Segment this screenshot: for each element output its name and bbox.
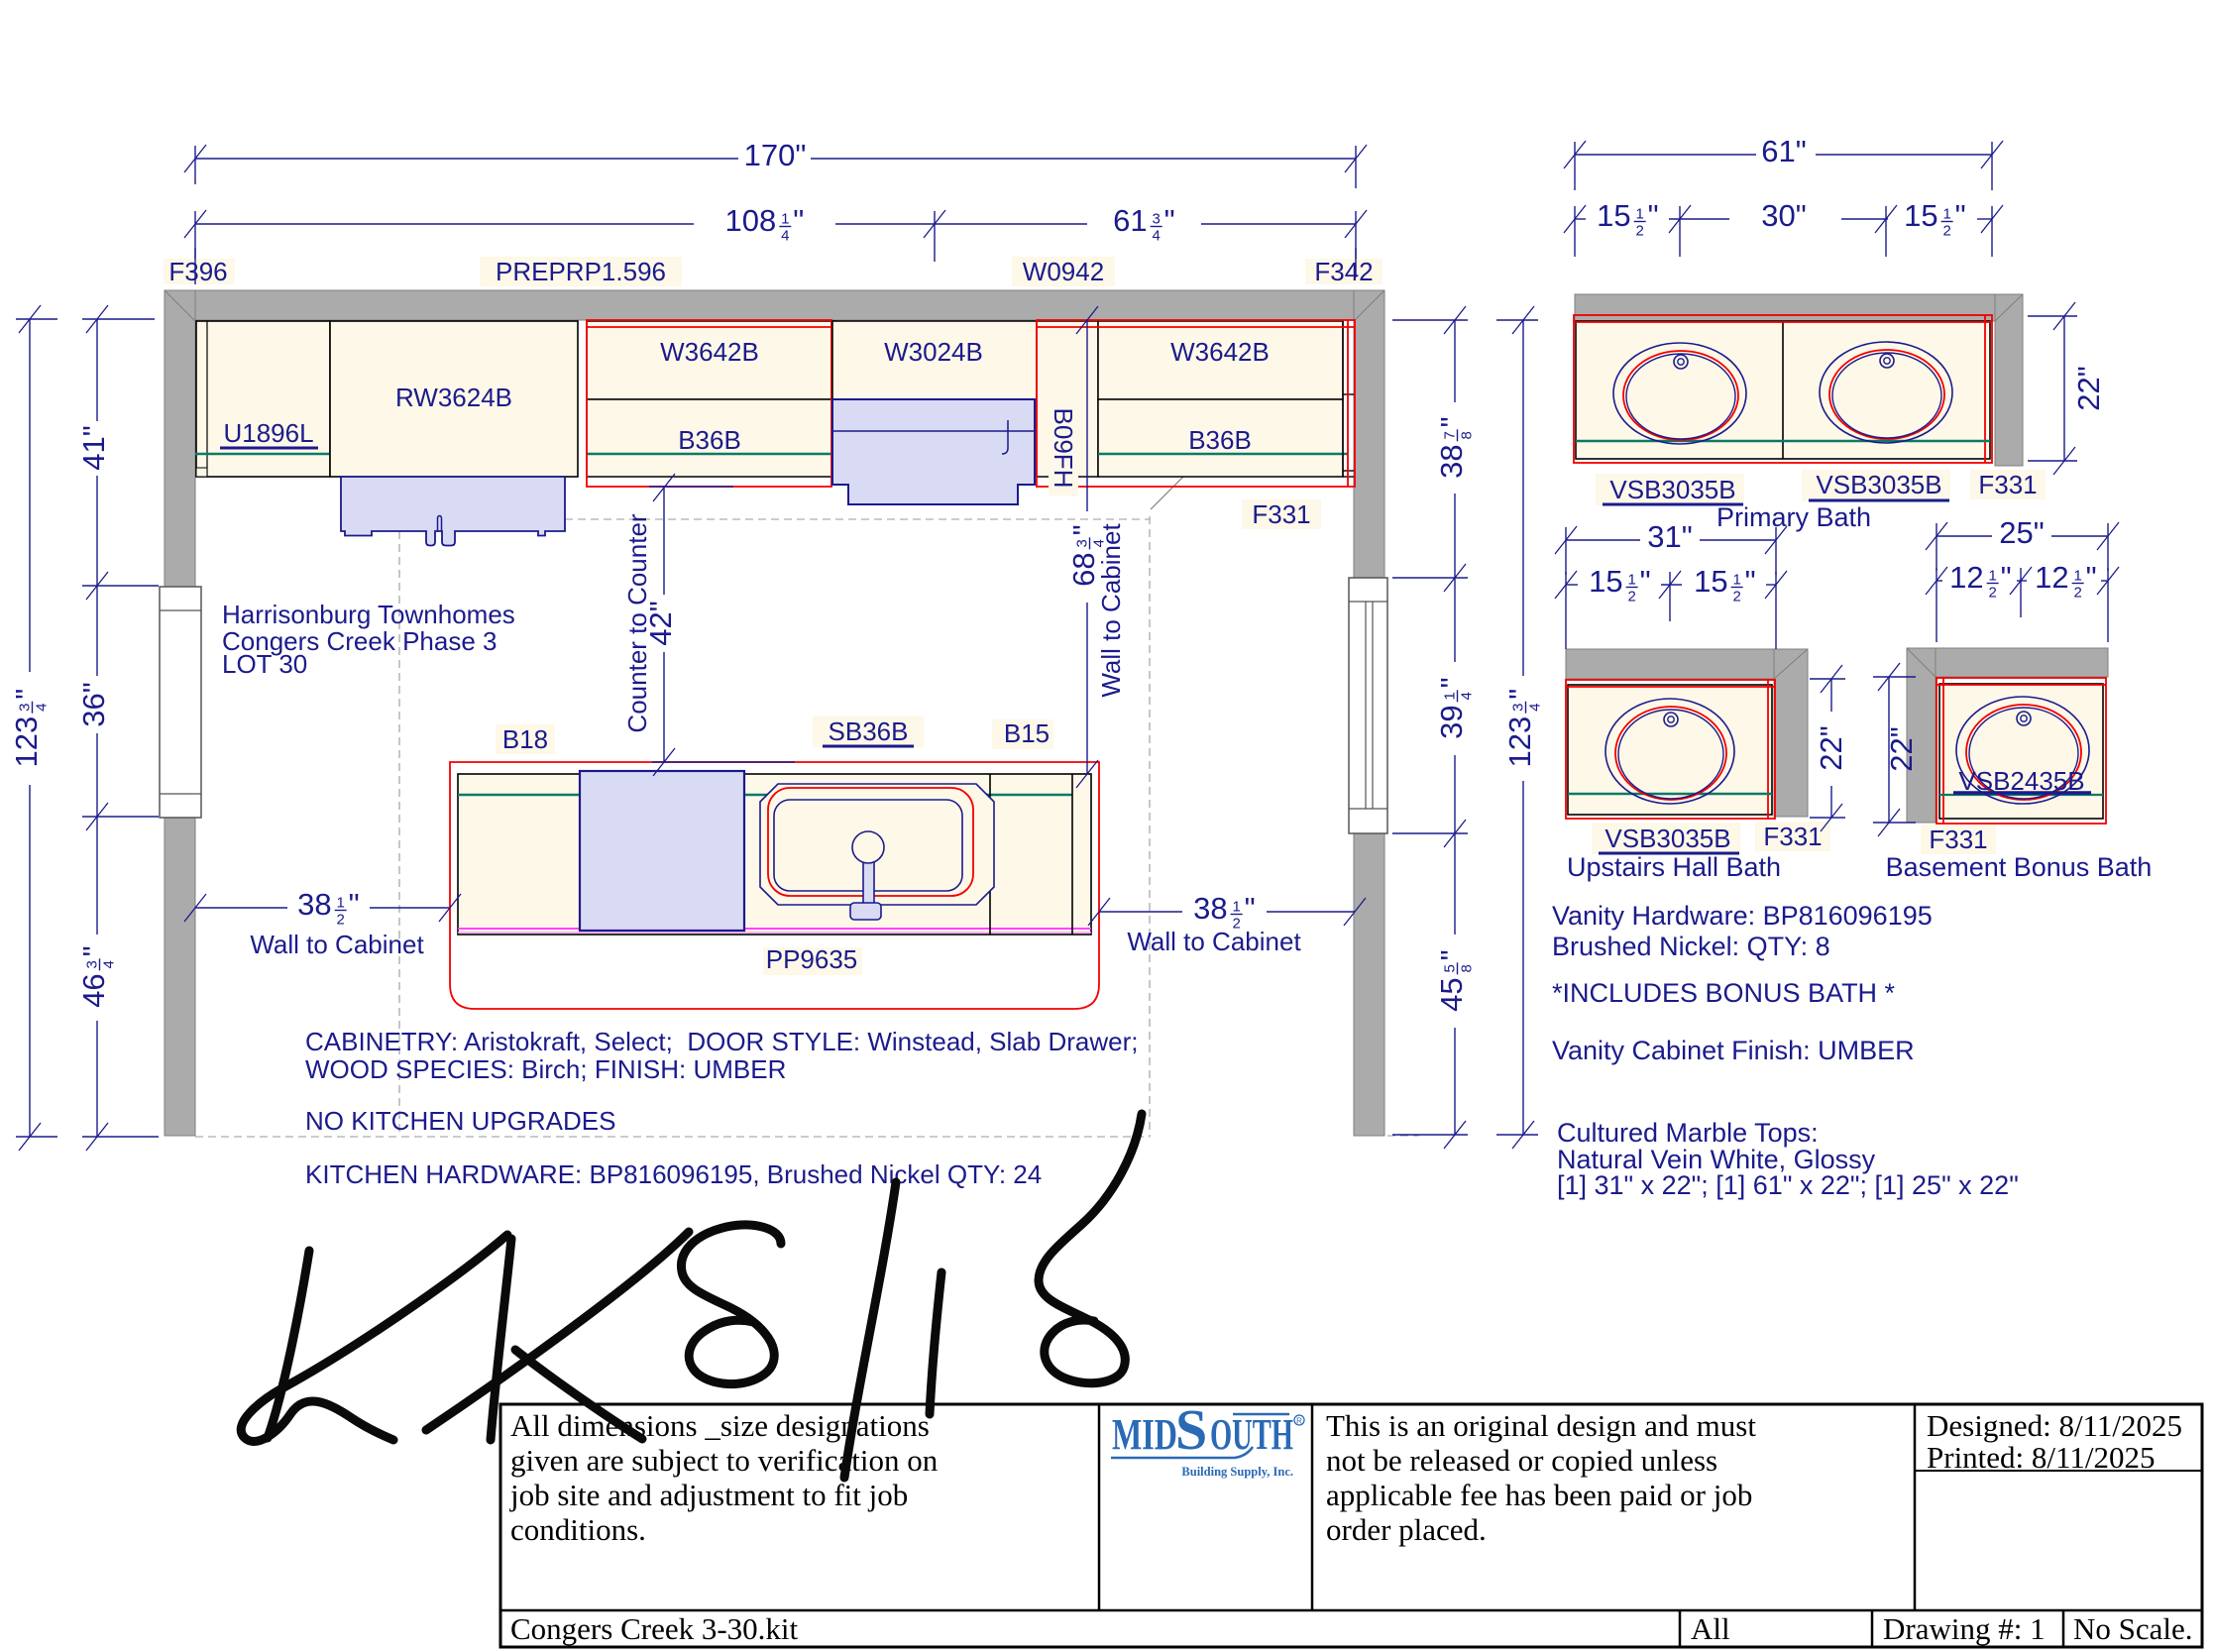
svg-text:38: 38 xyxy=(1434,444,1469,478)
svg-text:3: 3 xyxy=(1074,539,1091,547)
svg-text:LOT 30: LOT 30 xyxy=(222,649,307,679)
svg-text:U1896L: U1896L xyxy=(223,418,313,448)
svg-text:All: All xyxy=(1691,1611,1730,1646)
svg-text:No Scale.: No Scale. xyxy=(2073,1611,2193,1646)
svg-text:": " xyxy=(349,887,360,922)
svg-text:12: 12 xyxy=(1949,560,1983,595)
svg-text:Designed: 8/11/2025: Designed: 8/11/2025 xyxy=(1927,1408,2182,1443)
svg-text:2: 2 xyxy=(2073,585,2081,602)
svg-text:conditions.: conditions. xyxy=(510,1512,646,1547)
svg-text:1: 1 xyxy=(1988,568,1996,585)
svg-text:RW3624B: RW3624B xyxy=(395,383,512,412)
svg-text:": " xyxy=(1434,416,1469,427)
svg-text:This is an original design and: This is an original design and must xyxy=(1326,1408,1756,1443)
svg-text:Upstairs Hall Bath: Upstairs Hall Bath xyxy=(1567,852,1781,882)
svg-text:MID: MID xyxy=(1112,1410,1177,1459)
svg-text:Building Supply, Inc.: Building Supply, Inc. xyxy=(1181,1465,1293,1479)
svg-text:Basement Bonus Bath: Basement Bonus Bath xyxy=(1886,852,2153,882)
svg-text:45: 45 xyxy=(1434,977,1469,1011)
svg-text:": " xyxy=(1434,949,1469,960)
svg-text:36": 36" xyxy=(76,682,111,727)
svg-text:Vanity Hardware: BP816096195: Vanity Hardware: BP816096195 xyxy=(1552,901,1933,931)
svg-text:": " xyxy=(1245,891,1256,926)
svg-text:46: 46 xyxy=(76,973,111,1007)
svg-text:VSB3035B: VSB3035B xyxy=(1816,470,1941,499)
svg-text:": " xyxy=(1434,677,1469,688)
svg-text:SB36B: SB36B xyxy=(829,716,909,746)
svg-text:": " xyxy=(1502,689,1537,700)
svg-text:not be released or copied unle: not be released or copied unless xyxy=(1326,1443,1717,1478)
svg-text:": " xyxy=(1648,198,1659,233)
svg-text:CABINETRY: Aristokraft, Select: CABINETRY: Aristokraft, Select; DOOR STY… xyxy=(305,1027,1138,1056)
svg-text:3: 3 xyxy=(17,704,34,712)
svg-text:3: 3 xyxy=(1510,704,1527,712)
svg-text:1: 1 xyxy=(336,895,344,912)
svg-text:Wall to Cabinet: Wall to Cabinet xyxy=(1096,523,1126,698)
svg-text:170": 170" xyxy=(744,138,807,172)
svg-text:VSB3035B: VSB3035B xyxy=(1604,824,1730,853)
svg-text:W0942: W0942 xyxy=(1023,257,1104,286)
svg-text:": " xyxy=(1164,203,1175,238)
svg-text:7: 7 xyxy=(1442,431,1459,439)
svg-text:22": 22" xyxy=(1814,725,1848,771)
svg-text:39: 39 xyxy=(1434,705,1469,738)
svg-text:41": 41" xyxy=(76,425,111,471)
svg-text:2: 2 xyxy=(1988,585,1996,602)
svg-text:Harrisonburg Townhomes: Harrisonburg Townhomes xyxy=(222,600,515,629)
svg-text:": " xyxy=(1955,198,1966,233)
svg-text:38: 38 xyxy=(1193,891,1227,926)
svg-text:8: 8 xyxy=(1459,964,1476,972)
svg-text:": " xyxy=(9,689,44,700)
svg-text:W3642B: W3642B xyxy=(1170,337,1270,367)
svg-text:Congers Creek 3-30.kit: Congers Creek 3-30.kit xyxy=(510,1611,799,1646)
svg-text:Drawing #: 1: Drawing #: 1 xyxy=(1883,1611,2046,1646)
svg-text:": " xyxy=(1745,564,1756,599)
svg-text:2: 2 xyxy=(1635,223,1643,240)
svg-text:108: 108 xyxy=(724,203,776,238)
svg-text:F331: F331 xyxy=(1252,499,1310,529)
svg-text:15: 15 xyxy=(1589,564,1622,599)
svg-text:Cultured Marble Tops:: Cultured Marble Tops: xyxy=(1557,1118,1819,1148)
svg-text:B36B: B36B xyxy=(1188,425,1252,455)
svg-text:B09FH: B09FH xyxy=(1049,408,1078,489)
svg-text:4: 4 xyxy=(781,228,789,245)
svg-text:F331: F331 xyxy=(1929,825,1987,854)
svg-text:": " xyxy=(793,203,804,238)
svg-text:B18: B18 xyxy=(502,724,548,754)
svg-text:VSB3035B: VSB3035B xyxy=(1609,475,1735,504)
svg-text:1: 1 xyxy=(1442,692,1459,700)
svg-text:31": 31" xyxy=(1647,519,1693,554)
svg-text:2: 2 xyxy=(336,912,344,929)
svg-text:B15: B15 xyxy=(1004,718,1050,748)
svg-text:NO KITCHEN UPGRADES: NO KITCHEN UPGRADES xyxy=(305,1106,616,1136)
svg-text:PP9635: PP9635 xyxy=(766,944,858,974)
svg-text:61": 61" xyxy=(1761,134,1807,168)
svg-text:OUTH: OUTH xyxy=(1210,1410,1293,1459)
svg-text:15: 15 xyxy=(1597,198,1630,233)
svg-text:Wall to Cabinet: Wall to Cabinet xyxy=(1127,927,1301,956)
svg-text:Primary Bath: Primary Bath xyxy=(1716,502,1871,532)
svg-text:1: 1 xyxy=(1232,899,1240,916)
svg-text:[1] 31" x 22"; [1] 61" x 22";: [1] 31" x 22"; [1] 61" x 22"; [1] 25" x … xyxy=(1557,1170,2019,1200)
svg-text:": " xyxy=(1640,564,1651,599)
svg-text:4: 4 xyxy=(101,960,118,968)
svg-text:Printed: 8/11/2025: Printed: 8/11/2025 xyxy=(1927,1440,2156,1475)
svg-text:2: 2 xyxy=(1732,589,1740,606)
svg-text:25": 25" xyxy=(1999,515,2045,550)
svg-text:4: 4 xyxy=(1459,692,1476,700)
svg-text:8: 8 xyxy=(1459,431,1476,439)
svg-text:": " xyxy=(2001,560,2012,595)
svg-text:15: 15 xyxy=(1694,564,1727,599)
svg-text:15: 15 xyxy=(1904,198,1937,233)
svg-text:123: 123 xyxy=(1502,716,1537,768)
svg-text:4: 4 xyxy=(1152,228,1160,245)
svg-text:order placed.: order placed. xyxy=(1326,1512,1487,1547)
svg-text:2: 2 xyxy=(1627,589,1635,606)
svg-text:1: 1 xyxy=(1635,206,1643,223)
svg-text:Vanity Cabinet Finish: UMBER: Vanity Cabinet Finish: UMBER xyxy=(1552,1036,1915,1065)
svg-text:R: R xyxy=(1296,1417,1302,1426)
svg-text:F342: F342 xyxy=(1314,257,1373,286)
svg-text:": " xyxy=(76,945,111,956)
svg-text:All dimensions _size designati: All dimensions _size designations xyxy=(510,1408,930,1443)
svg-text:5: 5 xyxy=(1442,964,1459,972)
svg-text:3: 3 xyxy=(1152,211,1160,228)
svg-text:KITCHEN HARDWARE: BP816096195,: KITCHEN HARDWARE: BP816096195, Brushed N… xyxy=(305,1159,1042,1189)
svg-text:2: 2 xyxy=(1942,223,1950,240)
svg-text:3: 3 xyxy=(84,960,101,968)
svg-text:1: 1 xyxy=(2073,568,2081,585)
svg-text:Counter to Counter: Counter to Counter xyxy=(622,513,652,732)
svg-text:applicable fee has been paid o: applicable fee has been paid or job xyxy=(1326,1478,1752,1512)
svg-text:F331: F331 xyxy=(1763,822,1822,851)
svg-text:1: 1 xyxy=(781,211,789,228)
svg-text:38: 38 xyxy=(297,887,331,922)
svg-text:Wall to Cabinet: Wall to Cabinet xyxy=(250,930,424,959)
svg-text:W3642B: W3642B xyxy=(660,337,759,367)
svg-text:W3024B: W3024B xyxy=(884,337,983,367)
svg-text:12: 12 xyxy=(2035,560,2068,595)
svg-text:PREPRP1.596: PREPRP1.596 xyxy=(496,257,666,286)
svg-text:*INCLUDES BONUS BATH *: *INCLUDES BONUS BATH * xyxy=(1552,978,1896,1008)
svg-text:F396: F396 xyxy=(168,257,227,286)
svg-text:job site and adjustment to fit: job site and adjustment to fit job xyxy=(509,1478,908,1512)
svg-text:": " xyxy=(2086,560,2097,595)
svg-text:F331: F331 xyxy=(1978,470,2037,499)
svg-text:61: 61 xyxy=(1113,203,1147,238)
svg-text:4: 4 xyxy=(34,704,51,712)
svg-text:given are subject to verificat: given are subject to verification on xyxy=(510,1443,939,1478)
svg-text:B36B: B36B xyxy=(678,425,741,455)
svg-text:WOOD SPECIES: Birch; FINISH: U: WOOD SPECIES: Birch; FINISH: UMBER xyxy=(305,1054,786,1084)
svg-text:123: 123 xyxy=(9,716,44,768)
svg-text:1: 1 xyxy=(1942,206,1950,223)
svg-text:22": 22" xyxy=(1884,726,1919,772)
svg-text:S: S xyxy=(1175,1397,1207,1462)
svg-text:Brushed Nickel: QTY: 8: Brushed Nickel: QTY: 8 xyxy=(1552,932,1830,961)
svg-text:4: 4 xyxy=(1527,704,1544,712)
svg-text:22": 22" xyxy=(2071,366,2106,411)
svg-text:30": 30" xyxy=(1761,198,1807,233)
svg-text:1: 1 xyxy=(1627,572,1635,589)
svg-text:1: 1 xyxy=(1732,572,1740,589)
